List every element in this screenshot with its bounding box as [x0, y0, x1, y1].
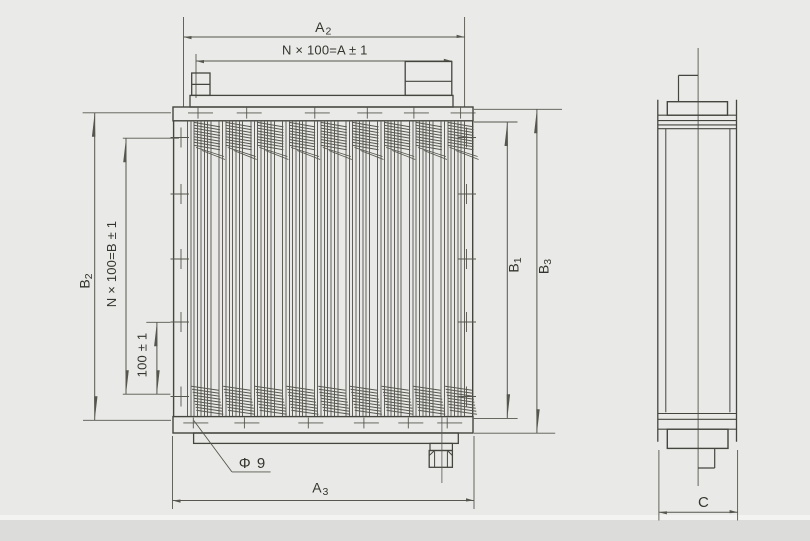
svg-text:C: C — [698, 494, 709, 511]
svg-text:Φ 9: Φ 9 — [239, 455, 266, 472]
svg-text:N × 100=B ± 1: N × 100=B ± 1 — [104, 221, 119, 307]
svg-text:N × 100=A ± 1: N × 100=A ± 1 — [282, 43, 368, 58]
svg-text:100 ± 1: 100 ± 1 — [135, 333, 150, 378]
